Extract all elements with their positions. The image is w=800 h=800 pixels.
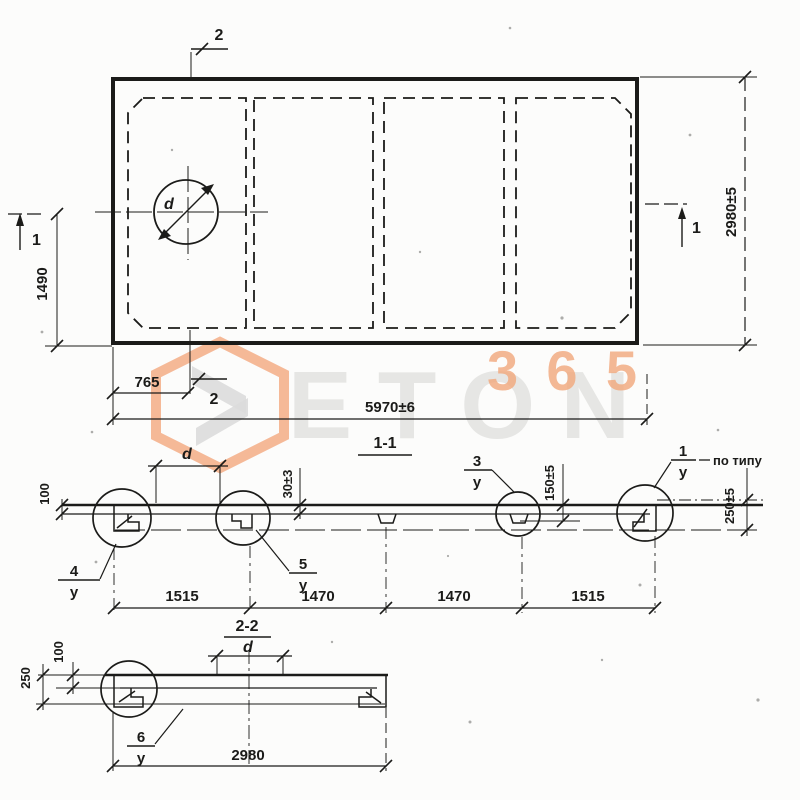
dim-1515-b: 1515 [571, 588, 604, 605]
callout-6: 6 у [127, 709, 183, 767]
callout-6-num: 6 [137, 729, 145, 746]
callout-5-den: у [299, 577, 308, 594]
callout-4-num: 4 [70, 563, 79, 580]
callout-1-den: у [679, 464, 688, 481]
detail-circle-4 [93, 489, 151, 547]
section1-dim-150: 150±5 [542, 465, 557, 501]
section2-dim-2980: 2980 [231, 747, 264, 764]
callout-3-num: 3 [473, 453, 481, 470]
plan-cut-label-bottom: 2 [210, 391, 219, 408]
callout-1-num: 1 [679, 443, 687, 460]
watermark-logo-hexagon [156, 342, 284, 468]
section2-dim-100-lines [38, 662, 120, 694]
blueprint-page: ETON 365 d [0, 0, 800, 800]
plan-hole-diameter-label: d [164, 196, 175, 213]
plan-panel-outlines [128, 98, 631, 328]
dim-1470-b: 1470 [437, 588, 470, 605]
section1-dim-30: 30±3 [280, 470, 295, 499]
drawing-svg: ETON 365 d [0, 0, 800, 800]
section1-detail-circles [93, 485, 673, 547]
section2-dim-250: 250 [18, 667, 33, 689]
dim-1490: 1490 [34, 267, 51, 300]
callout-1-note: по типу [713, 453, 763, 468]
callout-3-den: у [473, 474, 482, 491]
dim-2980-right: 2980±5 [723, 187, 740, 237]
section1-title: 1-1 [373, 435, 396, 452]
section2-dim-100: 100 [51, 641, 66, 663]
section1-dim-100: 100 [37, 483, 52, 505]
section-2-2: 2-2 d 100 [18, 618, 392, 772]
plan-cut-label-right: 1 [692, 220, 701, 237]
cut-arrowhead-right [678, 207, 686, 219]
watermark-logo-band-bottom [196, 398, 248, 446]
section1-rib-profiles [114, 505, 656, 531]
dim-1490-lines [45, 214, 112, 346]
plan-outer-border [113, 79, 637, 343]
section2-title: 2-2 [235, 618, 258, 635]
callout-6-den: у [137, 750, 146, 767]
section1-dim-d: d [182, 446, 193, 463]
section-1-1: 1-1 d [37, 435, 765, 614]
callout-5: 5 у [256, 530, 317, 594]
callout-5-num: 5 [299, 556, 307, 573]
cut-arrowhead-left [16, 213, 24, 226]
section2-slab-lines [105, 675, 388, 704]
dim-5970: 5970±6 [365, 399, 415, 416]
callout-4: 4 у [58, 544, 116, 601]
section1-slab-lines [62, 505, 763, 530]
callout-1: 1 у по типу [654, 443, 763, 488]
callout-4-den: у [70, 584, 79, 601]
detail-circle-6 [101, 661, 157, 717]
section1-dim-250: 250±5 [722, 488, 737, 524]
plan-cut-label-top: 2 [215, 27, 224, 44]
plan-cut-label-left: 1 [32, 232, 41, 249]
watermark-badge-text: 365 [487, 339, 649, 402]
section2-dim-d: d [243, 639, 254, 656]
dim-765: 765 [134, 374, 159, 391]
dim-1515-a: 1515 [165, 588, 198, 605]
section1-dim-250-lines [657, 468, 765, 536]
